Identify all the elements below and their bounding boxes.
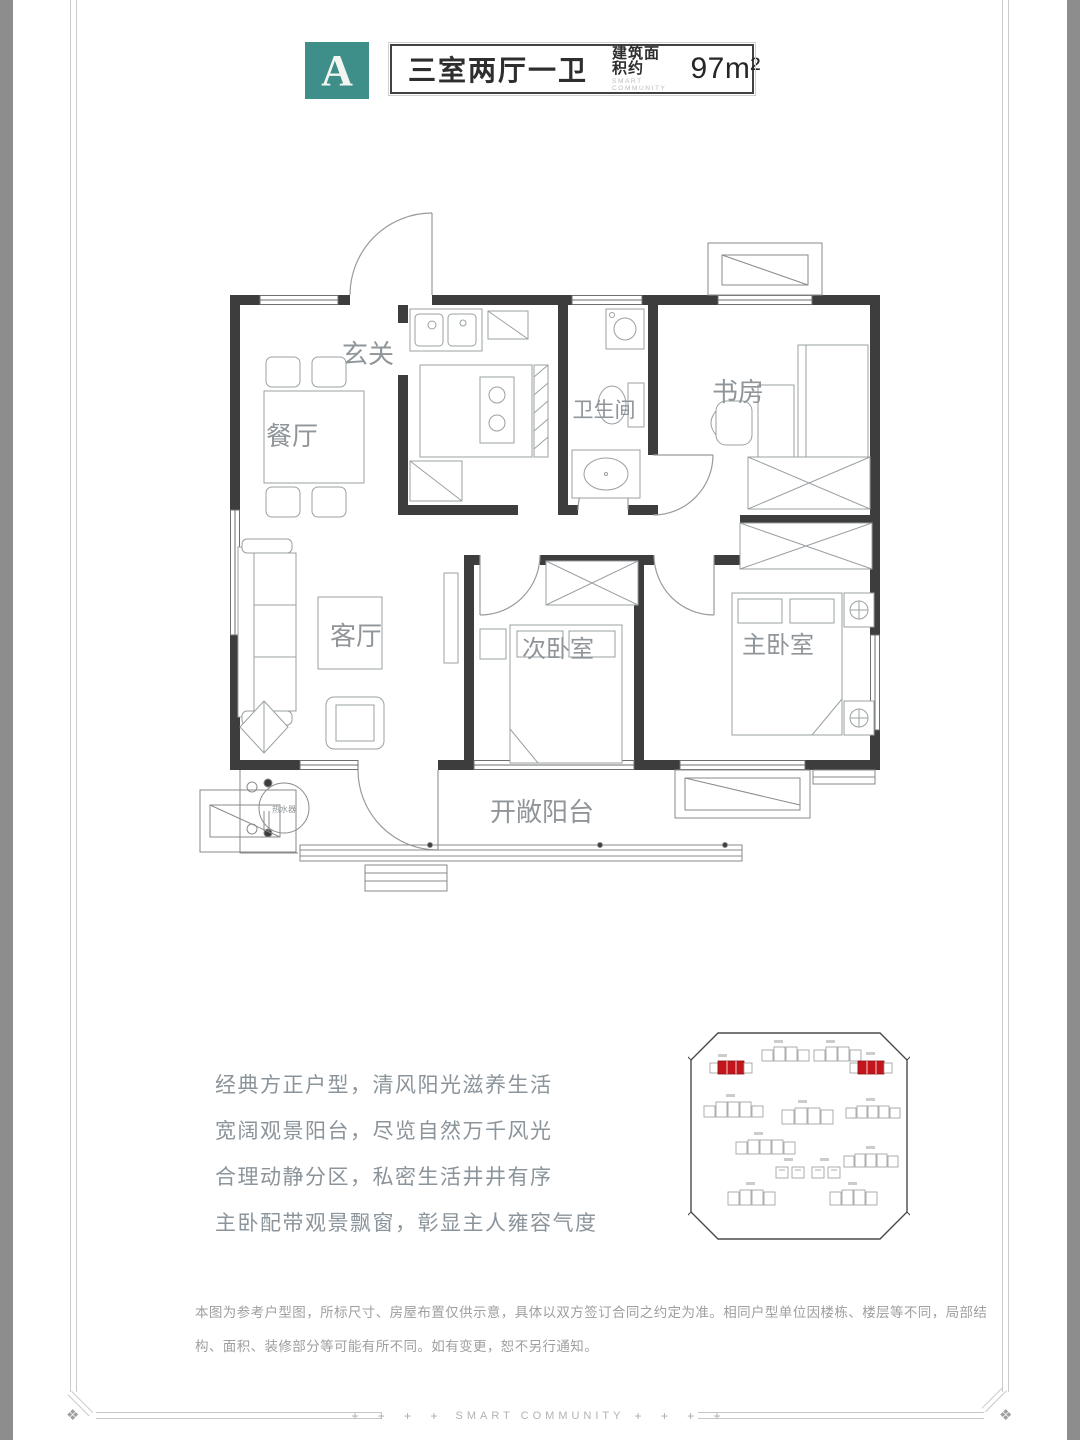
- label-second-bedroom: 次卧室: [522, 636, 594, 663]
- area-value: 97m²: [691, 52, 761, 86]
- right-gray-bar: [1067, 0, 1080, 1440]
- floorplan-flyer-page: { "header": { "unit_badge": "A", "unit_t…: [0, 0, 1080, 1440]
- frame-left-line-outer: [70, 0, 71, 1392]
- footer: + + + + SMART COMMUNITY + + + +: [0, 1402, 1080, 1430]
- unit-badge: A: [305, 42, 369, 99]
- description-line: 经典方正户型，清风阳光滋养生活: [215, 1063, 675, 1109]
- footer-plus-right: + + + +: [635, 1409, 729, 1423]
- area-label: 建筑面积约: [612, 46, 666, 76]
- study-bay-window: [708, 243, 822, 295]
- header-box: 三室两厅一卫 建筑面积约 SMART COMMUNITY 97m²: [390, 44, 754, 94]
- area-label-group: 建筑面积约 SMART COMMUNITY: [612, 46, 666, 92]
- description-line: 主卧配带观景飘窗，彰显主人雍容气度: [215, 1201, 675, 1247]
- disclaimer-text: 本图为参考户型图，所标尺寸、房屋布置仅供示意，具体以双方签订合同之约定为准。相同…: [195, 1296, 1005, 1365]
- label-water-heater: 热水器: [272, 804, 296, 814]
- label-balcony: 开敞阳台: [490, 797, 594, 827]
- left-gray-bar: [0, 0, 13, 1440]
- description-block: 经典方正户型，清风阳光滋养生活 宽阔观景阳台，尽览自然万千风光 合理动静分区，私…: [215, 1063, 675, 1247]
- balcony-structures: [200, 770, 875, 891]
- furniture: [238, 309, 874, 763]
- frame-right-line-inner: [1002, 0, 1003, 1392]
- footer-plus-left: + + + +: [351, 1409, 445, 1423]
- label-master-bedroom: 主卧室: [742, 632, 814, 659]
- floor-plan: 玄关 餐厅 卫生间 书房 客厅 次卧室 主卧室 开敞阳台 热水器: [180, 205, 900, 945]
- label-living: 客厅: [330, 621, 382, 651]
- footer-brand: SMART COMMUNITY: [446, 1410, 635, 1422]
- unit-badge-letter: A: [321, 45, 353, 96]
- frame-right-line-outer: [1008, 0, 1009, 1392]
- site-plan-map: [688, 1030, 910, 1242]
- description-line: 合理动静分区，私密生活井井有序: [215, 1155, 675, 1201]
- area-sublabel: SMART COMMUNITY: [612, 79, 666, 92]
- description-line: 宽阔观景阳台，尽览自然万千风光: [215, 1109, 675, 1155]
- master-bay-window: [675, 770, 810, 818]
- label-bathroom: 卫生间: [573, 399, 636, 422]
- label-dining: 餐厅: [266, 421, 318, 451]
- label-entry: 玄关: [342, 339, 394, 369]
- label-study: 书房: [712, 377, 764, 407]
- unit-type-title: 三室两厅一卫: [408, 49, 588, 89]
- frame-left-line-inner: [76, 0, 77, 1392]
